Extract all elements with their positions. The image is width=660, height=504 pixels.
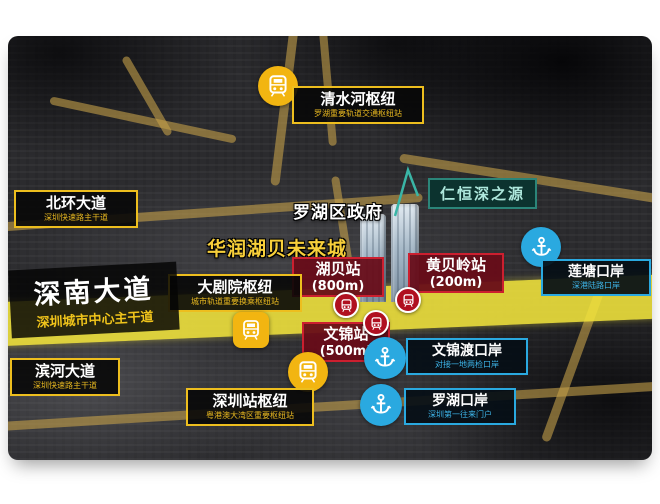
huangbeiling-station-name: 黄贝岭站 bbox=[413, 256, 499, 275]
label-qingshuihe-hub: 清水河枢纽 罗湖重要轨道交通枢纽站 bbox=[292, 86, 424, 124]
liantang-port-title: 莲塘口岸 bbox=[548, 263, 644, 281]
label-shennan-avenue: 深南大道 深圳城市中心主干道 bbox=[8, 262, 179, 339]
theater-hub-subtitle: 城市轨道重要换乘枢纽站 bbox=[174, 297, 296, 307]
road-northwest-curve bbox=[49, 96, 237, 143]
train-icon bbox=[233, 312, 269, 348]
label-huangbeiling-station: 黄贝岭站 (200m) bbox=[408, 253, 504, 293]
page: { "map": { "road_labels": { "qingshuihe"… bbox=[0, 0, 660, 504]
beihuan-subtitle: 深圳快速路主干道 bbox=[20, 213, 132, 223]
anchor-icon bbox=[364, 337, 406, 379]
luohu-port-title: 罗湖口岸 bbox=[411, 392, 509, 410]
metro-train-icon bbox=[363, 310, 389, 336]
label-hubei-station: 湖贝站 (800m) bbox=[292, 257, 384, 297]
metro-train-icon bbox=[395, 287, 421, 313]
luohu-port-subtitle: 深圳第一往来门户 bbox=[411, 410, 509, 420]
wenjindu-port-title: 文锦渡口岸 bbox=[413, 342, 521, 360]
binhe-title: 滨河大道 bbox=[16, 362, 114, 381]
hubei-station-name: 湖贝站 bbox=[297, 260, 379, 279]
theater-hub-title: 大剧院枢纽 bbox=[174, 278, 296, 297]
binhe-subtitle: 深圳快速路主干道 bbox=[16, 381, 114, 391]
qingshuihe-hub-title: 清水河枢纽 bbox=[298, 90, 418, 109]
label-wenjindu-port: 文锦渡口岸 对接一地两检口岸 bbox=[406, 338, 528, 375]
shenzhen-station-subtitle: 粤港澳大湾区重要枢纽站 bbox=[192, 411, 308, 421]
label-beihuan-avenue: 北环大道 深圳快速路主干道 bbox=[14, 190, 138, 228]
label-project-name: 仁恒深之源 bbox=[428, 178, 537, 209]
label-grand-theater-hub: 大剧院枢纽 城市轨道重要换乘枢纽站 bbox=[168, 274, 302, 312]
train-icon bbox=[288, 352, 328, 392]
label-liantang-port: 莲塘口岸 深港陆路口岸 bbox=[541, 259, 651, 296]
label-luohu-port: 罗湖口岸 深圳第一往来门户 bbox=[404, 388, 516, 425]
anchor-icon bbox=[360, 384, 402, 426]
metro-train-icon bbox=[333, 292, 359, 318]
liantang-port-subtitle: 深港陆路口岸 bbox=[548, 281, 644, 291]
label-luohu-district-government: 罗湖区政府 bbox=[293, 198, 383, 223]
satellite-map: 清水河枢纽 罗湖重要轨道交通枢纽站 北环大道 深圳快速路主干道 罗湖区政府 仁恒… bbox=[8, 36, 652, 460]
wenjindu-port-subtitle: 对接一地两检口岸 bbox=[413, 360, 521, 370]
huangbeiling-station-distance: (200m) bbox=[413, 275, 499, 291]
label-binhe-avenue: 滨河大道 深圳快速路主干道 bbox=[10, 358, 120, 396]
hubei-station-distance: (800m) bbox=[297, 279, 379, 295]
shenzhen-station-title: 深圳站枢纽 bbox=[192, 392, 308, 411]
beihuan-title: 北环大道 bbox=[20, 194, 132, 213]
label-shenzhen-station-hub: 深圳站枢纽 粤港澳大湾区重要枢纽站 bbox=[186, 388, 314, 426]
qingshuihe-hub-subtitle: 罗湖重要轨道交通枢纽站 bbox=[298, 109, 418, 119]
